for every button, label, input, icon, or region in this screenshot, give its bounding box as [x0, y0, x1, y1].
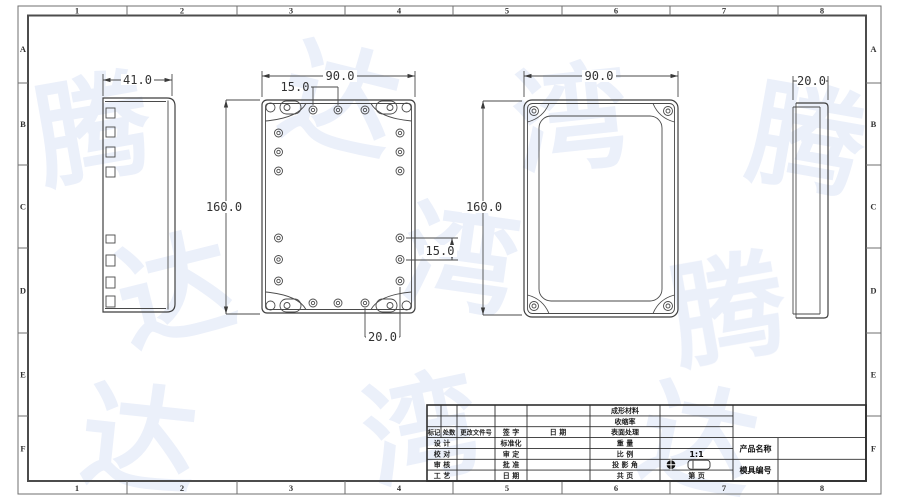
- zone-letter: D: [870, 286, 876, 296]
- zone-ticks-top: [127, 6, 778, 16]
- zone-number: 8: [820, 483, 824, 493]
- zone-number: 5: [505, 483, 509, 493]
- zone-number: 7: [722, 6, 727, 16]
- zone-letter: B: [871, 119, 877, 129]
- tb-sign-label: 工 艺: [434, 471, 450, 480]
- dim-label: 41.0: [123, 73, 152, 87]
- zone-number: 1: [75, 483, 79, 493]
- tb-spec-label: 共 页: [617, 471, 633, 480]
- tb-spec-label: 投 影 角: [612, 460, 638, 469]
- watermark-glyph: 湾: [352, 354, 492, 500]
- tb-mold-number-label: 模具编号: [740, 465, 772, 475]
- zone-number: 2: [180, 6, 184, 16]
- tb-spec-label: 重 量: [617, 439, 633, 448]
- tb-product-name-label: 产品名称: [740, 443, 772, 453]
- zone-letter: E: [871, 370, 877, 380]
- zone-letter: B: [20, 119, 26, 129]
- tb-sign-label: 标准化: [500, 439, 522, 448]
- zone-number: 4: [397, 6, 402, 16]
- dim-label: 160.0: [206, 200, 242, 214]
- tb-spec-label: 比 例: [617, 449, 633, 458]
- tb-sign-label: 审 定: [503, 449, 519, 458]
- tb-sign-label: 日 期: [503, 471, 519, 480]
- zone-number: 8: [820, 6, 824, 16]
- zone-ticks-right: [866, 83, 881, 416]
- dim-label: 160.0: [466, 200, 502, 214]
- zone-number: 2: [180, 483, 184, 493]
- tb-rev-header: 更改文件号: [460, 428, 492, 437]
- dim-label: 20.0: [368, 330, 397, 344]
- zone-letter: A: [20, 44, 27, 54]
- zone-letter: E: [20, 370, 26, 380]
- dim-label: 15.0: [281, 80, 310, 94]
- dim-label: 90.0: [585, 69, 614, 83]
- zone-number: 1: [75, 6, 79, 16]
- tb-sign-label: 设 计: [434, 439, 450, 448]
- zone-number: 5: [505, 6, 509, 16]
- tb-spec-label: 成形材料: [611, 406, 639, 415]
- dim-label: 20.0: [797, 74, 826, 88]
- zone-letter: C: [20, 202, 26, 212]
- zone-letter: C: [870, 202, 876, 212]
- watermark-glyph: 腾: [739, 66, 877, 218]
- tb-rev-header: 签 字: [502, 428, 519, 437]
- zone-letter: D: [20, 286, 26, 296]
- watermark-glyph: 达: [267, 23, 411, 181]
- tb-rev-header: 标记: [427, 428, 441, 437]
- tb-rev-header: 日 期: [550, 428, 566, 437]
- watermark-glyph: 腾: [660, 235, 798, 387]
- watermark: 腾 达 湾 腾 达 湾 腾 达 湾 达: [25, 23, 876, 500]
- zone-number: 6: [614, 6, 618, 16]
- zone-number: 6: [614, 483, 618, 493]
- zone-ticks-left: [18, 83, 28, 416]
- dim-label: 90.0: [326, 69, 355, 83]
- tb-spec-label: 收缩率: [615, 417, 636, 426]
- tb-sign-label: 审 核: [434, 460, 450, 469]
- tb-sign-label: 校 对: [434, 449, 450, 458]
- tb-spec-label: 表面处理: [610, 428, 639, 437]
- tb-rev-header: 处数: [442, 428, 456, 437]
- zone-letter: F: [20, 444, 25, 454]
- zone-letter: F: [871, 444, 876, 454]
- tb-sign-label: 批 准: [503, 460, 519, 469]
- tb-sheet-value: 第 页: [688, 471, 704, 480]
- dim-label: 15.0: [426, 244, 455, 258]
- tb-scale-value: 1:1: [689, 450, 704, 459]
- zone-number: 3: [289, 6, 293, 16]
- zone-letter: A: [870, 44, 877, 54]
- zone-number: 3: [289, 483, 293, 493]
- drawing-sheet: 腾 达 湾 腾 达 湾 腾 达 湾 达 1 2 3 4 5 6 7 8 1 2 …: [0, 0, 900, 500]
